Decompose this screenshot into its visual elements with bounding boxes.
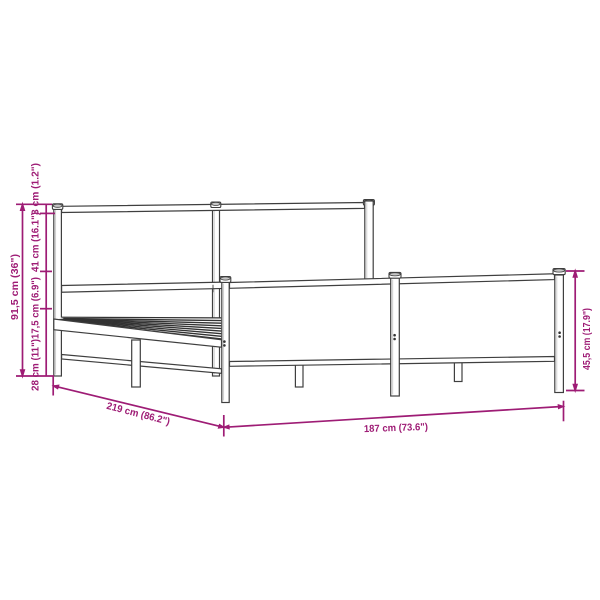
svg-text:45,5 cm (17.9"): 45,5 cm (17.9") [582,308,593,370]
svg-text:17,5 cm (6.9"): 17,5 cm (6.9") [31,277,42,339]
svg-text:187 cm (73.6"): 187 cm (73.6") [364,422,428,435]
svg-text:28 cm (11"): 28 cm (11") [31,339,42,391]
svg-text:41 cm (16.1"): 41 cm (16.1") [31,212,42,272]
svg-text:91,5 cm (36"): 91,5 cm (36") [10,254,21,320]
svg-text:3 cm (1.2"): 3 cm (1.2") [31,163,42,215]
